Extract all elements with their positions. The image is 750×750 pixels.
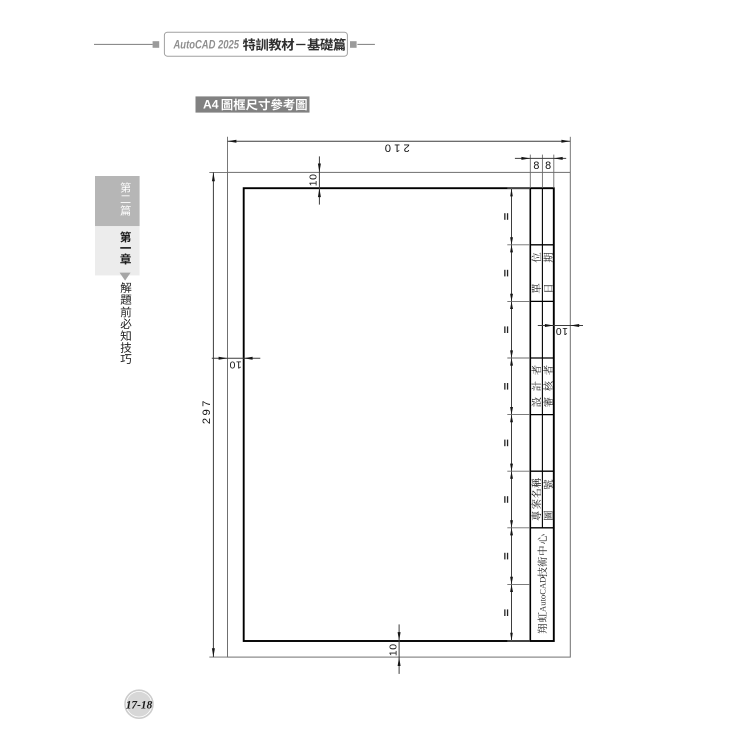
svg-text:297: 297 — [201, 401, 213, 425]
svg-text:8: 8 — [545, 160, 551, 172]
svg-text:210: 210 — [385, 141, 410, 153]
svg-text:AutoCAD 2025: AutoCAD 2025 — [173, 38, 240, 52]
svg-text:A4: A4 — [203, 98, 219, 112]
svg-text:10: 10 — [229, 359, 241, 370]
svg-text:10: 10 — [308, 174, 319, 186]
svg-text:AutoCAD: AutoCAD — [537, 577, 547, 612]
svg-text:10: 10 — [388, 644, 399, 656]
svg-text:10: 10 — [556, 325, 568, 336]
svg-text:8: 8 — [533, 160, 539, 172]
svg-text:17-18: 17-18 — [126, 699, 153, 711]
